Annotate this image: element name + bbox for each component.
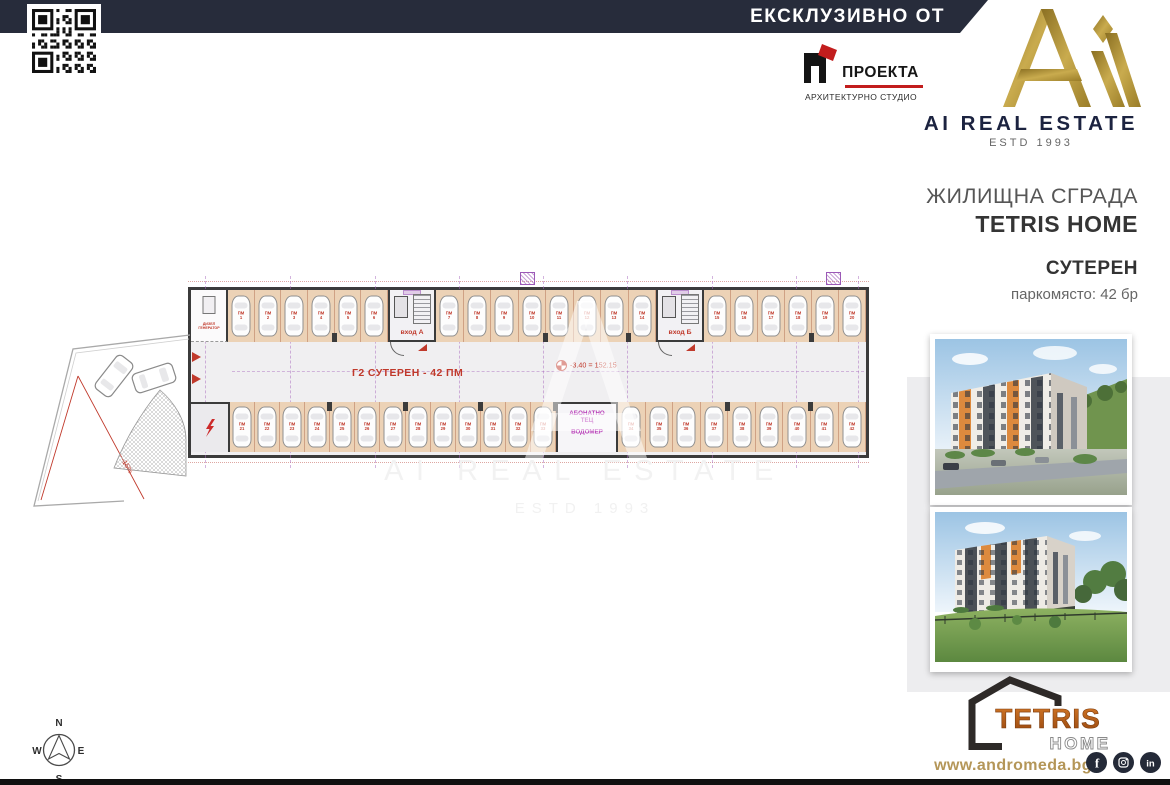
parking-stall-label: ПМ42 (849, 423, 856, 431)
stair-core-b: вход Б (656, 290, 704, 342)
room-label: ДИЗЕЛГЕНЕРАТОР (198, 322, 219, 329)
parking-stall-label: ПМ14 (638, 312, 645, 320)
parking-stall-label: ПМ37 (711, 423, 718, 431)
parking-stall: ПМ15 (704, 290, 731, 342)
parking-stall: ПМ4 (308, 290, 335, 342)
parking-stall-label: ПМ1 (238, 312, 245, 320)
parking-stall-label: ПМ6 (371, 312, 378, 320)
parking-stall: ПМ21 (230, 402, 255, 452)
parking-stall-label: ПМ24 (314, 423, 321, 431)
column (403, 402, 408, 411)
car-icon (93, 353, 135, 398)
parking-stall-label: ПМ13 (611, 312, 618, 320)
entrance-label: вход Б (665, 329, 695, 336)
parking-stall-label: ПМ31 (490, 423, 497, 431)
entrance-label: вход А (397, 329, 427, 336)
floor-plan: 15% Г2 СУТЕРЕН - 42 ПМ -3.40 = 152.15 ДИ… (0, 0, 1170, 785)
parking-stall-label: ПМ8 (473, 312, 480, 320)
parking-stall-label: ПМ17 (768, 312, 775, 320)
parking-stall-label: ПМ27 (389, 423, 396, 431)
parking-stall-label: ПМ33 (540, 423, 547, 431)
parking-stall: ПМ33 (531, 402, 556, 452)
lightning-icon (204, 419, 216, 437)
parking-stall-label: ПМ38 (738, 423, 745, 431)
parking-stall: ПМ2 (255, 290, 282, 342)
parking-segment: ПМ34ПМ35ПМ36ПМ37ПМ38ПМ39ПМ40ПМ41ПМ42 (618, 402, 866, 452)
parking-stall-label: ПМ34 (628, 423, 635, 431)
direction-arrow-icon (192, 352, 201, 362)
parking-stall-label: ПМ40 (793, 423, 800, 431)
staircase (413, 294, 431, 324)
parking-stall-label: ПМ22 (264, 423, 271, 431)
parking-stall-label: ПМ19 (822, 312, 829, 320)
qr-code (27, 4, 101, 78)
parking-stall-label: ПМ26 (364, 423, 371, 431)
parking-stall: ПМ40 (783, 402, 811, 452)
parking-stall: ПМ14 (629, 290, 657, 342)
electrical-room (191, 402, 230, 452)
parking-stall: ПМ42 (839, 402, 867, 452)
vent-shaft-icon (826, 272, 841, 285)
parking-stall: ПМ31 (481, 402, 506, 452)
generator-room: ДИЗЕЛГЕНЕРАТОР (191, 290, 228, 342)
heating-substation-room: АБОНАТНОТЕЦВОДОМЕР (556, 402, 618, 452)
parking-stall-label: ПМ18 (795, 312, 802, 320)
parking-stall: ПМ27 (380, 402, 405, 452)
column (332, 333, 337, 342)
column (725, 402, 730, 411)
vent-shaft-icon (520, 272, 535, 285)
elevation-symbol-icon (556, 360, 567, 371)
elevator-shaft (662, 296, 676, 318)
column (809, 333, 814, 342)
entrance-marker-icon (686, 344, 695, 351)
column (327, 402, 332, 411)
parking-segment: ПМ7ПМ8ПМ9ПМ10ПМ11ПМ12ПМ13ПМ14 (436, 290, 656, 342)
parking-stall: ПМ10 (519, 290, 547, 342)
parking-stall-label: ПМ12 (583, 312, 590, 320)
parking-stall-label: ПМ32 (515, 423, 522, 431)
parking-stall-label: ПМ29 (439, 423, 446, 431)
brochure-page: 15% Г2 СУТЕРЕН - 42 ПМ -3.40 = 152.15 ДИ… (0, 0, 1170, 785)
parking-stall: ПМ11 (546, 290, 574, 342)
column (553, 402, 558, 411)
parking-stall: ПМ17 (758, 290, 785, 342)
parking-stall: ПМ5 (335, 290, 362, 342)
parking-stall: ПМ41 (811, 402, 839, 452)
parking-stall: ПМ37 (701, 402, 729, 452)
parking-stall: ПМ1 (228, 290, 255, 342)
parking-stall: ПМ20 (839, 290, 866, 342)
parking-stall: ПМ38 (728, 402, 756, 452)
qr-code-image (32, 9, 96, 73)
parking-stall-label: ПМ15 (714, 312, 721, 320)
parking-stall: ПМ12 (574, 290, 602, 342)
direction-arrow-icon (192, 374, 201, 384)
parking-stall: ПМ16 (731, 290, 758, 342)
column (626, 333, 631, 342)
parking-stall: ПМ28 (406, 402, 431, 452)
aisle-centerline (232, 371, 864, 372)
parking-stall-label: ПМ2 (264, 312, 271, 320)
parking-segment: ПМ21ПМ22ПМ23ПМ24ПМ25ПМ26ПМ27ПМ28ПМ29ПМ30… (230, 402, 556, 452)
column (543, 333, 548, 342)
parking-stall: ПМ39 (756, 402, 784, 452)
parking-stall-label: ПМ11 (556, 312, 563, 320)
parking-stall: ПМ30 (456, 402, 481, 452)
parking-stall-label: ПМ23 (289, 423, 296, 431)
parking-stall-label: ПМ10 (528, 312, 535, 320)
parking-segment: ПМ15ПМ16ПМ17ПМ18ПМ19ПМ20 (704, 290, 866, 342)
parking-stall: ПМ25 (330, 402, 355, 452)
parking-stall: ПМ3 (281, 290, 308, 342)
parking-stall: ПМ19 (812, 290, 839, 342)
parking-stall-label: ПМ35 (656, 423, 663, 431)
parking-stall: ПМ34 (618, 402, 646, 452)
parking-stall: ПМ6 (361, 290, 388, 342)
parking-stall-label: ПМ16 (741, 312, 748, 320)
room-label: АБОНАТНОТЕЦВОДОМЕР (569, 410, 605, 435)
parking-stall: ПМ7 (436, 290, 464, 342)
car-icon (131, 362, 177, 394)
ramp-drawing: 15% (26, 330, 194, 512)
parking-stall: ПМ23 (280, 402, 305, 452)
parking-stall: ПМ36 (673, 402, 701, 452)
parking-stall-label: ПМ21 (239, 423, 246, 431)
stair-core-a: вход А (388, 290, 436, 342)
parking-stall: ПМ9 (491, 290, 519, 342)
parking-stall: ПМ26 (355, 402, 380, 452)
parking-stall: ПМ22 (255, 402, 280, 452)
parking-stall-label: ПМ36 (683, 423, 690, 431)
parking-stall-label: ПМ25 (339, 423, 346, 431)
column (478, 402, 483, 411)
elevator-shaft (394, 296, 408, 318)
parking-stall-label: ПМ3 (291, 312, 298, 320)
parking-stall: ПМ35 (646, 402, 674, 452)
parking-stall-label: ПМ9 (501, 312, 508, 320)
parking-segment: ПМ1ПМ2ПМ3ПМ4ПМ5ПМ6 (228, 290, 388, 342)
elevation-value: -3.40 = 152.15 (570, 362, 617, 370)
parking-stall-label: ПМ20 (849, 312, 856, 320)
elevation-marker: -3.40 = 152.15 (556, 360, 635, 371)
parking-stall-label: ПМ39 (766, 423, 773, 431)
parking-stall: ПМ29 (431, 402, 456, 452)
parking-stall-label: ПМ28 (414, 423, 421, 431)
parking-row: ДИЗЕЛГЕНЕРАТОРПМ1ПМ2ПМ3ПМ4ПМ5ПМ6вход АПМ… (191, 290, 866, 342)
parking-stall: ПМ18 (785, 290, 812, 342)
parking-stall-label: ПМ41 (821, 423, 828, 431)
parking-stall: ПМ8 (464, 290, 492, 342)
parking-stall-label: ПМ4 (318, 312, 325, 320)
aisle-label: Г2 СУТЕРЕН - 42 ПМ (352, 367, 463, 379)
parking-stall-label: ПМ30 (464, 423, 471, 431)
parking-stall: ПМ32 (506, 402, 531, 452)
parking-stall: ПМ24 (305, 402, 330, 452)
staircase (681, 294, 699, 324)
parking-stall-label: ПМ5 (344, 312, 351, 320)
parking-stall: ПМ13 (601, 290, 629, 342)
equipment-box (202, 296, 215, 314)
column (808, 402, 813, 411)
parking-stall-label: ПМ7 (446, 312, 453, 320)
entrance-marker-icon (418, 344, 427, 351)
parking-row: ПМ21ПМ22ПМ23ПМ24ПМ25ПМ26ПМ27ПМ28ПМ29ПМ30… (191, 402, 866, 452)
